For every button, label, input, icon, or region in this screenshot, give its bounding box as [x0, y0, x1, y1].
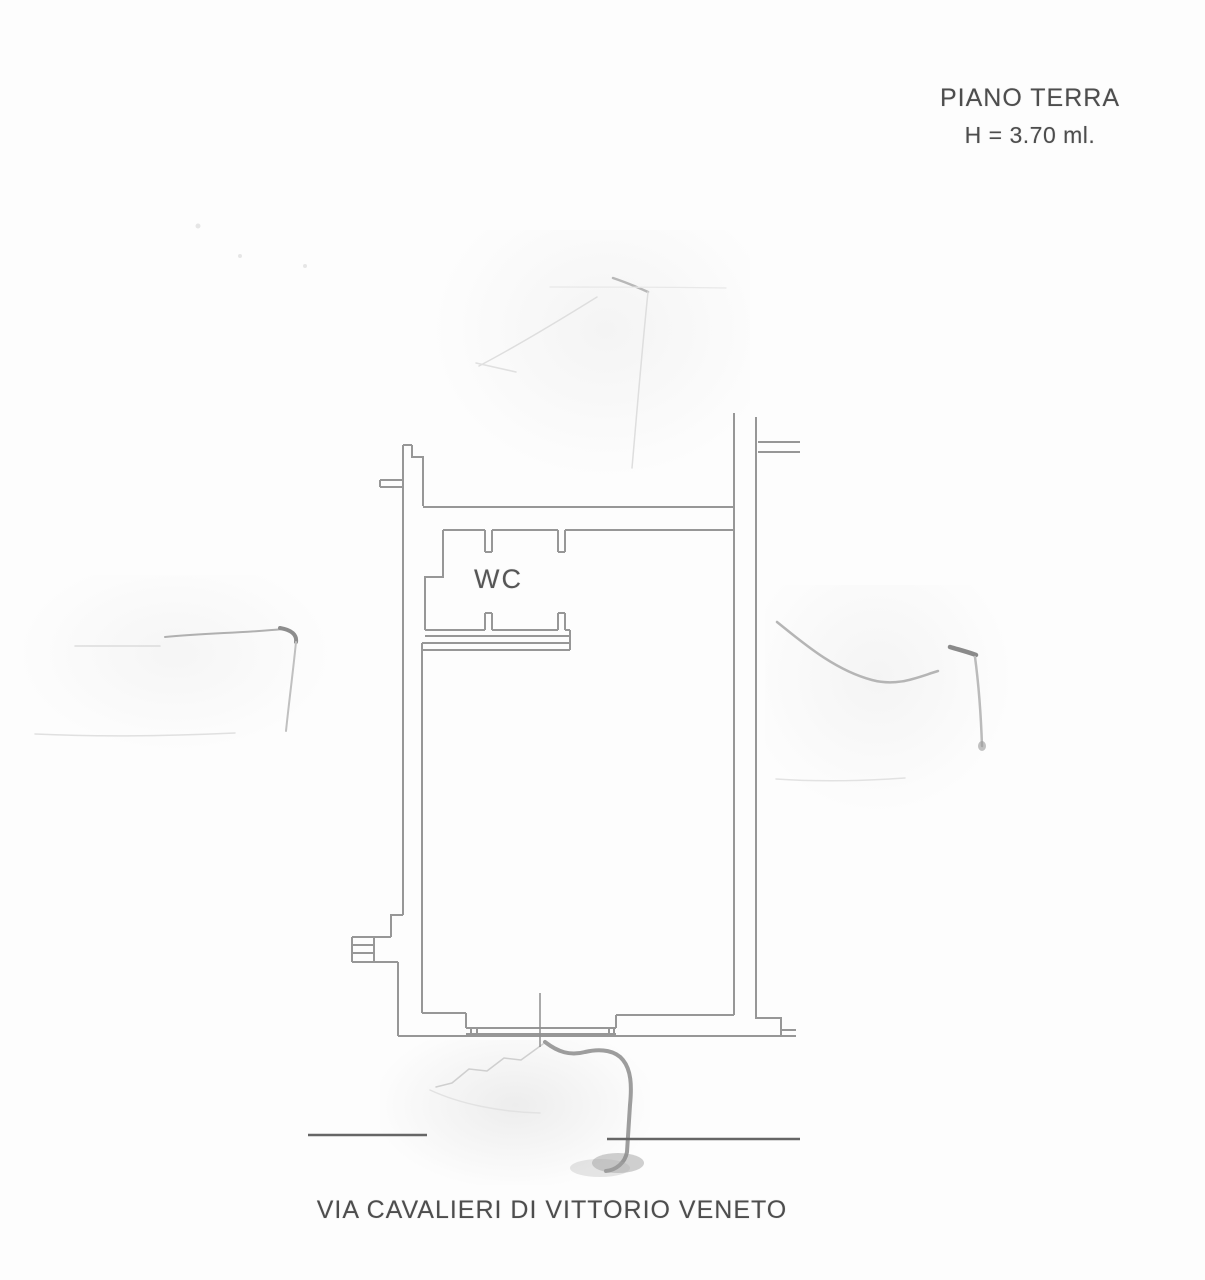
entrance-threshold [466, 1013, 616, 1034]
wc-room-label: WC [474, 564, 523, 595]
floor-height-note: H = 3.70 ml. [880, 122, 1180, 149]
floor-title: PIANO TERRA [880, 84, 1180, 113]
scan-specks [196, 224, 308, 269]
outer-walls [352, 413, 800, 1036]
scan-crease-bottom [430, 1042, 644, 1177]
scan-crease-top [476, 278, 726, 468]
scan-crease-left [35, 628, 296, 736]
floor-plan-drawing [0, 0, 1205, 1280]
wc-partition [422, 530, 734, 650]
street-edge-lines [308, 1135, 800, 1139]
street-name-label: VIA CAVALIERI DI VITTORIO VENETO [252, 1196, 852, 1225]
scan-crease-right [776, 622, 986, 781]
scanned-floor-plan-page: PIANO TERRA H = 3.70 ml. WC VIA CAVALIER… [0, 0, 1205, 1280]
